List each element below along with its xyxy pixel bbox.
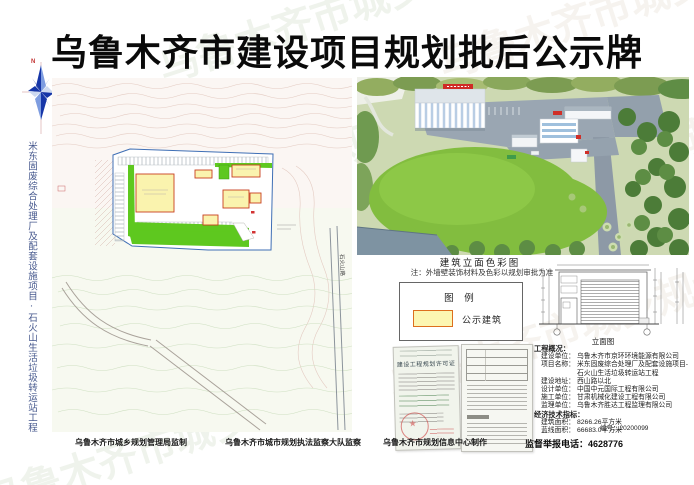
- info-heading: 工程概况：: [534, 345, 690, 353]
- axis-bubble: [554, 329, 560, 335]
- legend-item-label: 公示建筑: [462, 313, 502, 326]
- red-sign: [585, 151, 589, 154]
- info-value: 中国中元国际工程有限公司: [577, 386, 690, 394]
- legend-title: 图 例: [400, 290, 522, 304]
- info-row: 设计单位： 中国中元国际工程有限公司: [534, 386, 690, 394]
- info-row: 建设地址： 西山路以北: [534, 378, 690, 386]
- workshop-building: [415, 84, 485, 131]
- info-label: 建设地址：: [541, 378, 577, 386]
- info-label: 设计单位：: [541, 386, 577, 394]
- info-value: 米东固废综合处理厂及配套设施项目-石火山生活垃圾转运站工程: [577, 361, 690, 377]
- permit-attachment-document: [461, 344, 533, 452]
- page-title: 乌鲁木齐市建设项目规划批后公示牌: [0, 24, 694, 76]
- notice-board: 乌鲁木齐市城乡规划 乌鲁木齐市城乡规划 乌鲁木齐市城乡规划 乌鲁木齐市城乡规划 …: [0, 0, 694, 485]
- indicators-heading: 经济技术指标：: [534, 411, 690, 419]
- vehicle: [507, 155, 516, 159]
- aerial-rendering-image: [357, 77, 689, 255]
- slope-hatch: [95, 160, 115, 246]
- report-hotline: 监督举报电话：4628776: [525, 437, 623, 450]
- planning-permit-document: 建设工程规划许可证: [393, 345, 462, 451]
- axis-bubble: [644, 329, 650, 335]
- parking-row: [115, 173, 124, 241]
- gate-mark: [252, 231, 256, 234]
- attachment-table: [466, 349, 528, 381]
- info-label: 项目名称：: [541, 361, 577, 377]
- red-sign: [553, 111, 562, 115]
- indicator-label: 蓝线面积：: [541, 427, 577, 435]
- footer-org-supervisor: 乌鲁木齐市城乡规划管理局监制: [75, 437, 187, 448]
- site-plan-map: 石火山路: [52, 78, 352, 432]
- vehicle: [531, 151, 539, 155]
- roller-door: [581, 280, 639, 324]
- project-name-vertical: 米东固废综合处理厂及配套设施项目·石火山生活垃圾转运站工程: [23, 141, 39, 435]
- info-row: 项目名称： 米东固废综合处理厂及配套设施项目-石火山生活垃圾转运站工程: [534, 361, 690, 377]
- gate-mark: [251, 211, 255, 214]
- legend-box: 图 例 公示建筑: [399, 282, 523, 341]
- red-sign: [576, 135, 581, 139]
- long-building: [565, 107, 611, 119]
- office-building: [540, 119, 581, 143]
- info-value: 西山路以北: [577, 378, 690, 386]
- legend-swatch: [413, 310, 453, 327]
- permit-title: 建设工程规划许可证: [396, 358, 456, 369]
- elevation-drawing: 立面图: [533, 262, 691, 348]
- info-value: 乌鲁木齐胜达工程监理有限公司: [577, 402, 690, 410]
- footer-org-inspector: 乌鲁木齐市城市规划执法监察大队监察: [225, 437, 361, 448]
- footer-org-producer: 乌鲁木齐市规划信息中心制作: [383, 437, 487, 448]
- indicator-label: 建筑面积：: [541, 419, 577, 427]
- serial-number: 编号：20200099: [600, 422, 648, 432]
